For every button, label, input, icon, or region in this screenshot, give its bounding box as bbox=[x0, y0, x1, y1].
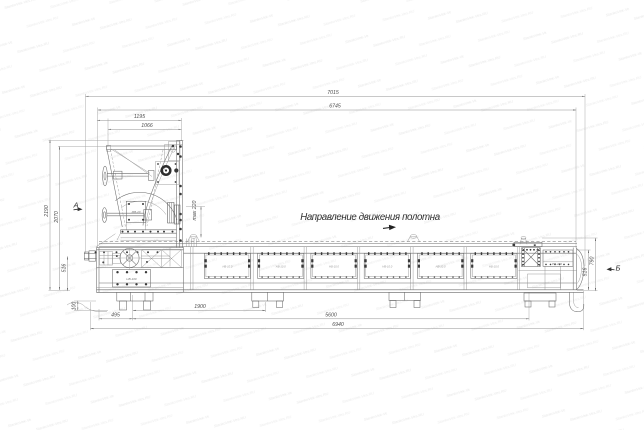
svg-text:790: 790 bbox=[589, 257, 595, 266]
svg-text:1900: 1900 bbox=[194, 304, 206, 310]
svg-text:МВ-20: МВ-20 bbox=[132, 210, 141, 214]
svg-text:495: 495 bbox=[111, 312, 120, 318]
svg-text:6940: 6940 bbox=[332, 322, 344, 328]
svg-text:7015: 7015 bbox=[327, 90, 339, 96]
svg-text:1066: 1066 bbox=[141, 123, 153, 129]
svg-text:НВ-10.0: НВ-10.0 bbox=[382, 264, 392, 268]
svg-text:НВ-10.0: НВ-10.0 bbox=[222, 264, 232, 268]
svg-text:100: 100 bbox=[71, 302, 77, 311]
svg-text:5600: 5600 bbox=[325, 312, 337, 318]
svg-text:2070: 2070 bbox=[54, 211, 60, 224]
svg-text:516: 516 bbox=[61, 264, 67, 273]
svg-text:6745: 6745 bbox=[329, 104, 341, 110]
svg-text:РВ-200: РВ-200 bbox=[552, 262, 562, 266]
svg-text:НВ-10.0: НВ-10.0 bbox=[436, 264, 446, 268]
svg-text:Направление движения полотна: Направление движения полотна bbox=[300, 212, 441, 223]
svg-text:2190: 2190 bbox=[44, 205, 50, 218]
svg-text:НВ-100: НВ-100 bbox=[126, 277, 137, 281]
svg-text:НВ-10.0: НВ-10.0 bbox=[329, 264, 339, 268]
svg-text:1195: 1195 bbox=[134, 114, 145, 120]
svg-text:НВ-10.0: НВ-10.0 bbox=[489, 264, 499, 268]
svg-text:max 220: max 220 bbox=[192, 200, 198, 220]
svg-text:НВ-10.0: НВ-10.0 bbox=[276, 264, 286, 268]
svg-text:Б: Б bbox=[616, 264, 621, 273]
